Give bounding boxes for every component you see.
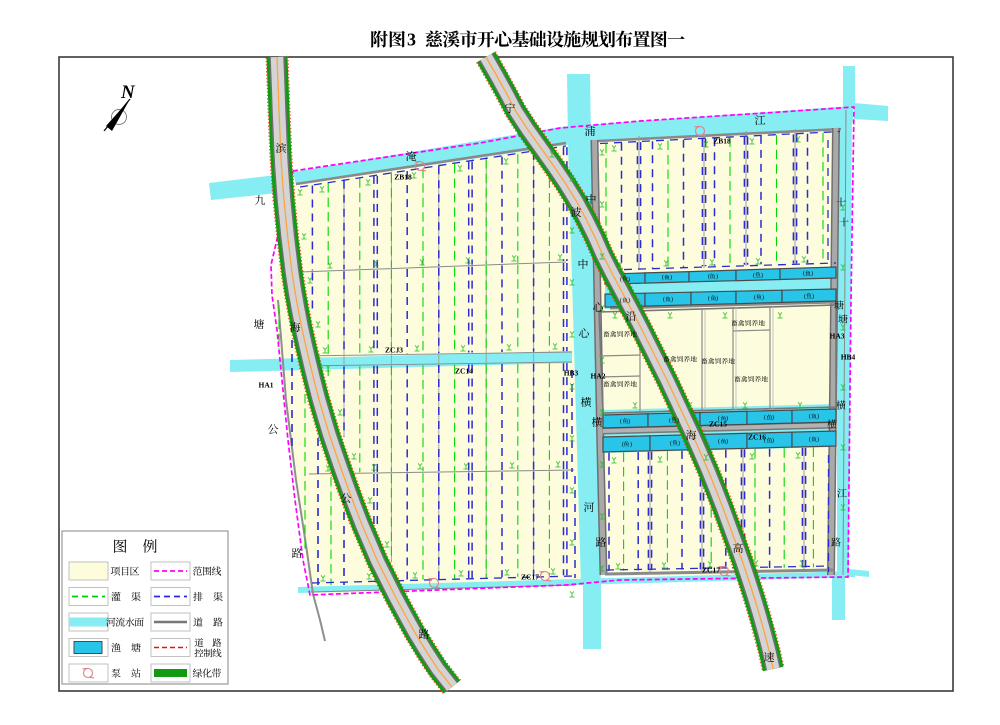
svg-text:): )	[772, 414, 774, 421]
svg-text:ZCJ3: ZCJ3	[385, 346, 403, 355]
svg-text:): )	[817, 413, 819, 420]
svg-text:): )	[716, 273, 718, 280]
svg-text:): )	[630, 441, 632, 448]
svg-text:HA3: HA3	[830, 332, 845, 341]
svg-text:ZB18: ZB18	[394, 173, 412, 182]
svg-text:(: (	[803, 270, 805, 277]
svg-text:(: (	[620, 297, 622, 304]
svg-text:(: (	[669, 417, 671, 424]
svg-text:): )	[677, 417, 679, 424]
svg-text:3: 3	[407, 30, 416, 50]
svg-text:(: (	[663, 296, 665, 303]
svg-text:(: (	[708, 295, 710, 302]
svg-text:(: (	[620, 276, 622, 283]
svg-text:(: (	[662, 274, 664, 281]
svg-text:(: (	[804, 293, 806, 300]
svg-text:(: (	[764, 414, 766, 421]
svg-text:ZC15: ZC15	[709, 420, 727, 429]
svg-text:HB3: HB3	[564, 369, 579, 378]
svg-text:HB4: HB4	[841, 353, 856, 362]
svg-text:): )	[811, 270, 813, 277]
svg-text:(: (	[670, 440, 672, 447]
svg-text:(: (	[708, 273, 710, 280]
svg-text:): )	[671, 296, 673, 303]
svg-text:N: N	[120, 82, 136, 103]
svg-text:(: (	[718, 438, 720, 445]
svg-text:(: (	[622, 441, 624, 448]
svg-text:): )	[762, 294, 764, 301]
svg-text:): )	[628, 276, 630, 283]
svg-text:): )	[817, 436, 819, 443]
svg-text:ZC16: ZC16	[748, 433, 766, 442]
svg-text:ZC17: ZC17	[702, 566, 720, 575]
svg-text:HA2: HA2	[591, 372, 606, 381]
svg-text:): )	[678, 440, 680, 447]
svg-text:(: (	[620, 418, 622, 425]
svg-text:ZC14: ZC14	[455, 367, 473, 376]
svg-text:(: (	[809, 436, 811, 443]
svg-text:ZC17: ZC17	[521, 573, 539, 582]
svg-text:(: (	[754, 294, 756, 301]
svg-text:): )	[761, 272, 763, 279]
svg-text:): )	[628, 297, 630, 304]
svg-text:): )	[716, 295, 718, 302]
svg-text:ZB18: ZB18	[713, 137, 731, 146]
svg-text:(: (	[809, 413, 811, 420]
svg-text:): )	[812, 293, 814, 300]
svg-text:): )	[628, 418, 630, 425]
svg-text:): )	[670, 274, 672, 281]
svg-text:(: (	[753, 272, 755, 279]
svg-text:): )	[726, 438, 728, 445]
svg-text:HA1: HA1	[259, 381, 274, 390]
svg-text:): )	[772, 437, 774, 444]
